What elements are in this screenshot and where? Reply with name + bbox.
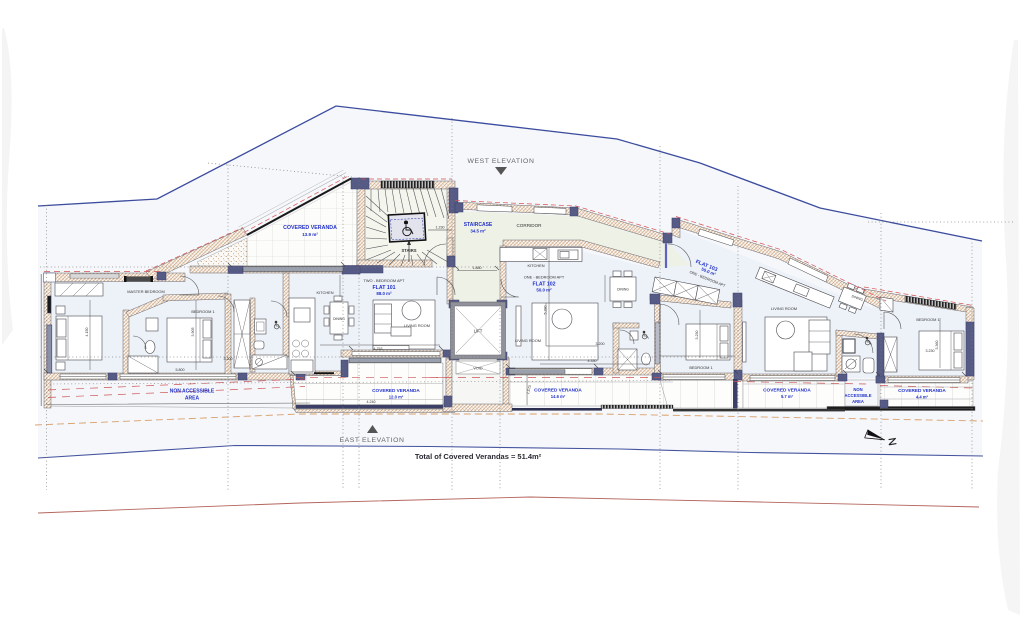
svg-text:COVERED VERANDA: COVERED VERANDA: [534, 388, 582, 393]
svg-text:COVERED VERANDA: COVERED VERANDA: [372, 388, 420, 393]
svg-text:ONE - BEDROOM APT: ONE - BEDROOM APT: [524, 275, 565, 280]
svg-text:4.330: 4.330: [588, 359, 597, 363]
svg-text:VOID: VOID: [473, 367, 483, 371]
svg-text:1.880: 1.880: [473, 266, 482, 270]
svg-text:3.230: 3.230: [695, 331, 699, 340]
svg-text:ACCESSIBLE: ACCESSIBLE: [845, 393, 872, 398]
svg-text:COVERED VERANDA: COVERED VERANDA: [763, 388, 811, 393]
svg-text:5.800: 5.800: [176, 368, 185, 372]
svg-text:COVERED VERANDA: COVERED VERANDA: [283, 225, 337, 231]
svg-text:LIFT: LIFT: [474, 329, 483, 334]
svg-text:TWO - BEDROOM APT: TWO - BEDROOM APT: [363, 278, 405, 283]
svg-text:WEST ELEVATION: WEST ELEVATION: [468, 158, 535, 165]
svg-text:3.200: 3.200: [224, 357, 233, 361]
svg-text:EAST ELEVATION: EAST ELEVATION: [339, 437, 404, 444]
svg-text:4.4 m²: 4.4 m²: [916, 395, 929, 400]
svg-text:3.200: 3.200: [596, 342, 605, 346]
svg-text:50.0 m²: 50.0 m²: [536, 288, 552, 293]
svg-text:AREA: AREA: [185, 396, 200, 402]
svg-text:STAIRS: STAIRS: [401, 248, 416, 253]
svg-text:4.753: 4.753: [374, 347, 383, 351]
svg-text:14.6 m²: 14.6 m²: [551, 394, 566, 399]
svg-text:4.240: 4.240: [367, 400, 376, 404]
svg-text:3.230: 3.230: [926, 349, 935, 353]
svg-text:DINING: DINING: [617, 288, 629, 292]
svg-text:88.0 m²: 88.0 m²: [376, 291, 392, 296]
svg-text:NON ACCESSIBLE: NON ACCESSIBLE: [170, 389, 215, 395]
svg-text:13.9 m²: 13.9 m²: [302, 232, 318, 237]
svg-text:BEDROOM 1: BEDROOM 1: [191, 309, 214, 314]
svg-text:LIVING ROOM: LIVING ROOM: [404, 323, 430, 328]
svg-text:DINING: DINING: [333, 317, 345, 321]
svg-text:BEDROOM 1: BEDROOM 1: [689, 365, 712, 370]
svg-text:5.280: 5.280: [544, 306, 548, 315]
svg-text:AREA: AREA: [852, 399, 864, 404]
svg-text:12.0 m²: 12.0 m²: [389, 395, 404, 400]
svg-text:LIVING ROOM: LIVING ROOM: [515, 338, 541, 343]
svg-text:KITCHEN: KITCHEN: [527, 263, 544, 268]
svg-text:Total of Covered Verandas = 51: Total of Covered Verandas = 51.4m²: [415, 452, 542, 461]
svg-text:COVERED VERANDA: COVERED VERANDA: [898, 388, 946, 393]
svg-text:BEDROOM 1: BEDROOM 1: [916, 317, 939, 322]
svg-text:34.5 m²: 34.5 m²: [470, 229, 486, 234]
svg-text:3.360: 3.360: [935, 341, 939, 350]
svg-text:KITCHEN: KITCHEN: [316, 290, 333, 295]
svg-text:CORRIDOR: CORRIDOR: [516, 223, 542, 228]
svg-text:5.7 m²: 5.7 m²: [781, 394, 794, 399]
svg-text:MASTER BEDROOM: MASTER BEDROOM: [127, 289, 164, 294]
svg-text:STAIRCASE: STAIRCASE: [464, 222, 493, 228]
svg-text:1.230: 1.230: [436, 226, 445, 230]
svg-text:4.150: 4.150: [85, 328, 89, 337]
svg-text:3.905: 3.905: [191, 328, 195, 337]
svg-text:NON: NON: [853, 387, 862, 392]
svg-text:LIVING ROOM: LIVING ROOM: [771, 306, 797, 311]
